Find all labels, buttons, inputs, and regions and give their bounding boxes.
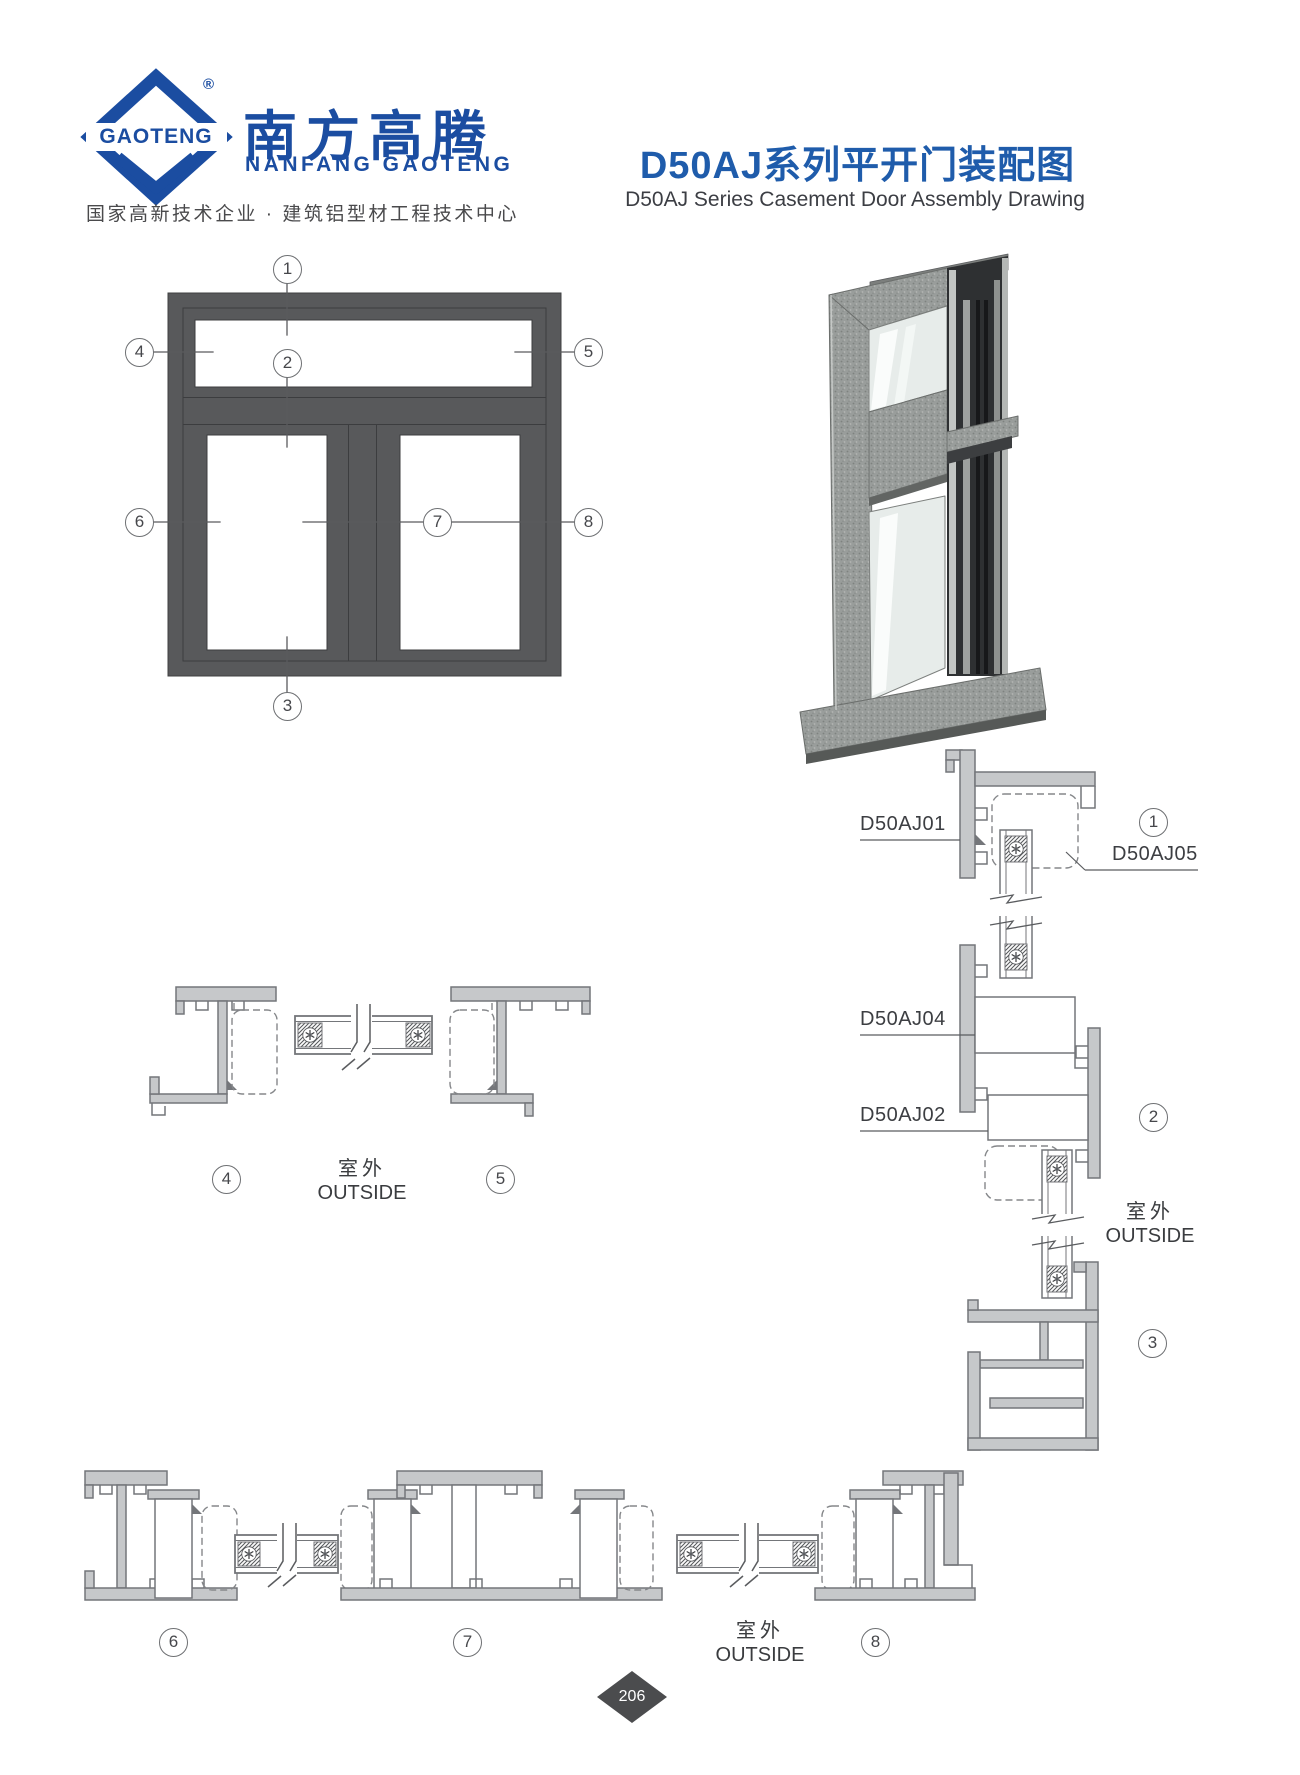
- company-tagline: 国家高新技术企业 · 建筑铝型材工程技术中心: [86, 199, 519, 226]
- catalog-page: { "header": { "logo_mark": "GAOTENG", "r…: [0, 0, 1300, 1775]
- section-horizontal-top: [150, 987, 590, 1116]
- callout-elevation-1: 1: [273, 255, 302, 284]
- callout-elevation-8: 8: [574, 508, 603, 537]
- outside-cn: 室外: [302, 1157, 422, 1181]
- part-label-d50aj04: D50AJ04: [860, 1008, 946, 1031]
- callout-elevation-7: 7: [423, 508, 452, 537]
- callout-section-vertical-3: 3: [1138, 1329, 1167, 1358]
- callout-section-bottom-7: 7: [453, 1628, 482, 1657]
- part-label-d50aj05: D50AJ05: [1112, 843, 1198, 866]
- company-name-en: NANFANG GAOTENG: [245, 153, 513, 177]
- callout-section-top-4: 4: [212, 1165, 241, 1194]
- callout-section-vertical-2: 2: [1139, 1103, 1168, 1132]
- glass-unit: [295, 1004, 432, 1070]
- drawing-canvas: [0, 0, 1300, 1775]
- outside-en: OUTSIDE: [1090, 1224, 1210, 1248]
- callout-section-bottom-6: 6: [159, 1628, 188, 1657]
- callout-section-top-5: 5: [486, 1165, 515, 1194]
- callout-section-vertical-1: 1: [1139, 808, 1168, 837]
- page-title-cn: D50AJ系列平开门装配图: [620, 134, 1095, 189]
- page-number: 206: [602, 1688, 662, 1706]
- callout-elevation-6: 6: [125, 508, 154, 537]
- section-horizontal-bottom: [85, 1471, 975, 1600]
- part-label-d50aj02: D50AJ02: [860, 1104, 946, 1127]
- outside-en: OUTSIDE: [302, 1181, 422, 1205]
- outside-label-bottom: 室外 OUTSIDE: [700, 1619, 820, 1667]
- outside-cn: 室外: [700, 1619, 820, 1643]
- logo-wordmark: GAOTENG: [88, 125, 224, 149]
- callout-elevation-3: 3: [273, 692, 302, 721]
- outside-label-vertical: 室外 OUTSIDE: [1090, 1200, 1210, 1248]
- callout-elevation-4: 4: [125, 338, 154, 367]
- outside-en: OUTSIDE: [700, 1643, 820, 1667]
- page-title-en: D50AJ Series Casement Door Assembly Draw…: [600, 188, 1110, 212]
- render-3d: [800, 254, 1046, 764]
- callout-elevation-2: 2: [273, 349, 302, 378]
- registered-trademark-icon: ®: [203, 76, 214, 93]
- callout-elevation-5: 5: [574, 338, 603, 367]
- outside-label-top: 室外 OUTSIDE: [302, 1157, 422, 1205]
- elevation-drawing: [153, 283, 574, 692]
- part-label-d50aj01: D50AJ01: [860, 813, 946, 836]
- outside-cn: 室外: [1090, 1200, 1210, 1224]
- callout-section-bottom-8: 8: [861, 1628, 890, 1657]
